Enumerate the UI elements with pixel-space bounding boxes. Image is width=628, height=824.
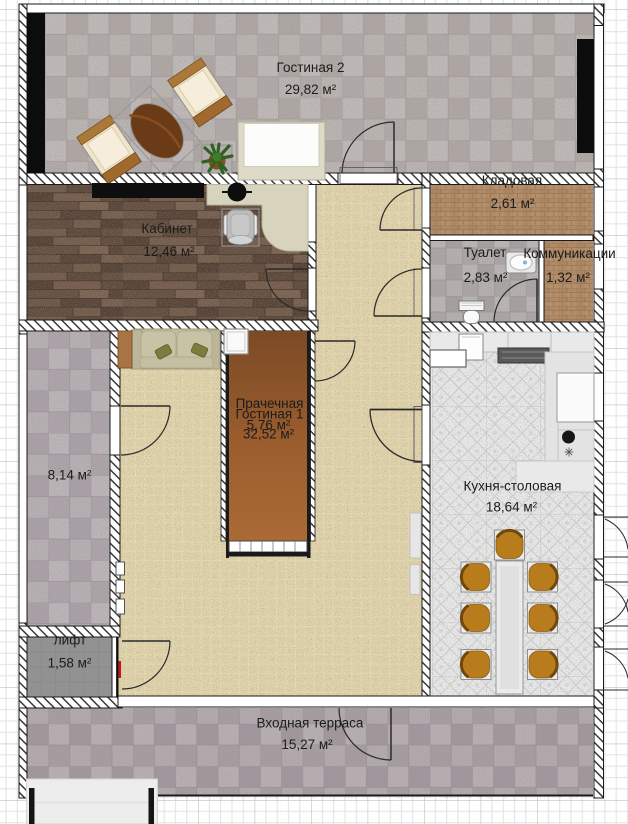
svg-text:Кабинет: Кабинет [141, 221, 192, 236]
svg-text:Кухня-столовая: Кухня-столовая [464, 479, 562, 494]
svg-text:15,27 м²: 15,27 м² [281, 737, 333, 752]
svg-text:Кладовая: Кладовая [482, 173, 542, 188]
svg-text:Гостиная 2: Гостиная 2 [277, 60, 345, 75]
svg-text:Туалет: Туалет [464, 245, 507, 260]
svg-text:8,14 м²: 8,14 м² [48, 468, 92, 483]
svg-text:Коммуникации: Коммуникации [523, 246, 615, 261]
svg-text:1,32 м²: 1,32 м² [546, 270, 590, 285]
svg-text:2,61 м²: 2,61 м² [491, 196, 535, 211]
svg-text:18,64 м²: 18,64 м² [486, 500, 538, 515]
svg-text:Входная терраса: Входная терраса [257, 716, 364, 731]
svg-text:2,83 м²: 2,83 м² [464, 270, 508, 285]
svg-text:29,82 м²: 29,82 м² [285, 82, 337, 97]
svg-text:1,58 м²: 1,58 м² [48, 656, 92, 671]
svg-text:12,46 м²: 12,46 м² [143, 244, 195, 259]
svg-text:32,52 м²: 32,52 м² [243, 427, 295, 442]
svg-text:лифт: лифт [54, 633, 86, 648]
svg-text:Гостиная 1: Гостиная 1 [236, 407, 304, 422]
